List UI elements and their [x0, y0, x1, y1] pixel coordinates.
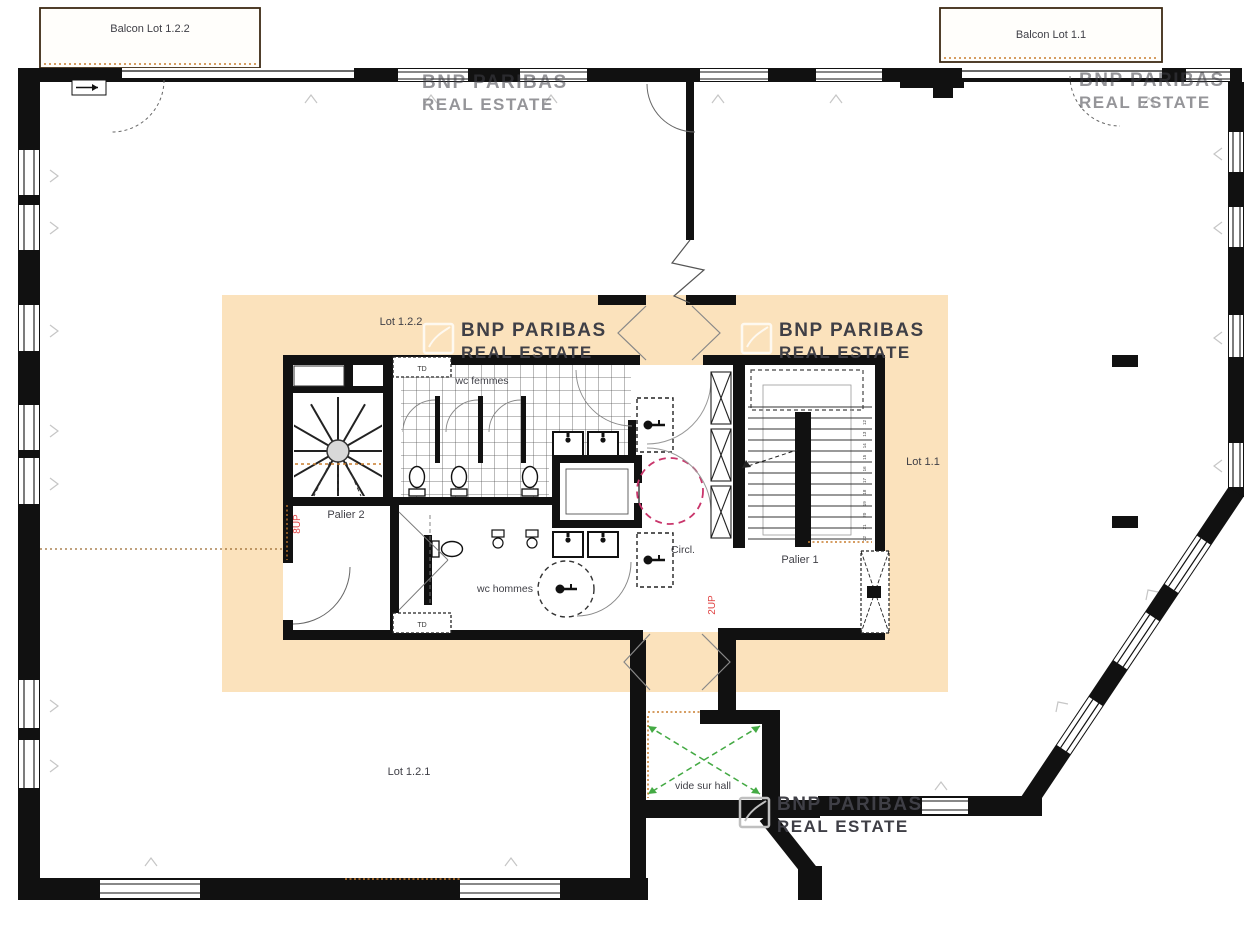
palier-1-label: Palier 1: [781, 554, 818, 566]
svg-text:BNP PARIBAS: BNP PARIBAS: [1079, 70, 1225, 91]
column: [1112, 355, 1138, 367]
svg-text:20: 20: [862, 512, 867, 518]
up-annotation-spiral: 8UP: [292, 514, 303, 534]
svg-text:BNP PARIBAS: BNP PARIBAS: [779, 320, 925, 341]
balcony-left: Balcon Lot 1.2.2: [40, 8, 260, 68]
svg-text:17: 17: [862, 477, 867, 483]
wc-hommes-label: wc hommes: [476, 583, 533, 595]
vide-sur-hall: vide sur hall: [646, 712, 762, 798]
svg-text:18: 18: [862, 489, 867, 495]
svg-text:REAL ESTATE: REAL ESTATE: [461, 343, 593, 362]
duct-shaft: [861, 551, 889, 633]
svg-text:21: 21: [862, 524, 867, 530]
wc-femmes-label: wc femmes: [454, 375, 508, 387]
key-box-bottom: [637, 533, 673, 587]
balcony-left-label: Balcon Lot 1.2.2: [110, 23, 190, 35]
svg-text:16: 16: [862, 466, 867, 472]
stair-door-panels: [711, 372, 731, 538]
td-box-top: TD: [393, 357, 451, 377]
windows-left-wall: [19, 150, 39, 788]
svg-text:REAL ESTATE: REAL ESTATE: [422, 95, 554, 114]
elevator: [552, 455, 644, 528]
svg-text:BNP PARIBAS: BNP PARIBAS: [461, 320, 607, 341]
svg-text:14: 14: [862, 443, 867, 449]
core-closet: [294, 366, 344, 386]
svg-text:BNP PARIBAS: BNP PARIBAS: [422, 72, 568, 93]
svg-text:15: 15: [862, 454, 867, 460]
lot-121-label: Lot 1.2.1: [388, 766, 431, 778]
up-annotation-main: 2UP: [707, 595, 718, 615]
svg-text:REAL ESTATE: REAL ESTATE: [779, 343, 911, 362]
svg-text:22: 22: [862, 535, 867, 541]
vide-sur-hall-label: vide sur hall: [675, 780, 731, 792]
svg-text:REAL ESTATE: REAL ESTATE: [1079, 93, 1211, 112]
svg-text:BNP PARIBAS: BNP PARIBAS: [777, 794, 923, 815]
svg-text:13: 13: [862, 431, 867, 437]
column: [1112, 516, 1138, 528]
svg-text:12: 12: [862, 419, 867, 425]
svg-text:REAL ESTATE: REAL ESTATE: [777, 817, 909, 836]
lot-11-label: Lot 1.1: [906, 456, 940, 468]
td-label: TD: [417, 622, 426, 629]
circulation-label: Circl.: [671, 544, 695, 556]
lot-122-label: Lot 1.2.2: [380, 316, 423, 328]
td-box-bottom: TD: [393, 613, 451, 633]
floor-plan-svg: Balcon Lot 1.2.2 Balcon Lot 1.1: [0, 0, 1249, 937]
palier-2-label: Palier 2: [327, 509, 364, 521]
td-label: TD: [417, 366, 426, 373]
balcony-right-label: Balcon Lot 1.1: [1016, 29, 1086, 41]
floor-plan-page: Balcon Lot 1.2.2 Balcon Lot 1.1: [0, 0, 1249, 937]
svg-text:19: 19: [862, 501, 867, 507]
balcony-right: Balcon Lot 1.1: [940, 8, 1162, 62]
direction-arrow: [72, 80, 106, 95]
